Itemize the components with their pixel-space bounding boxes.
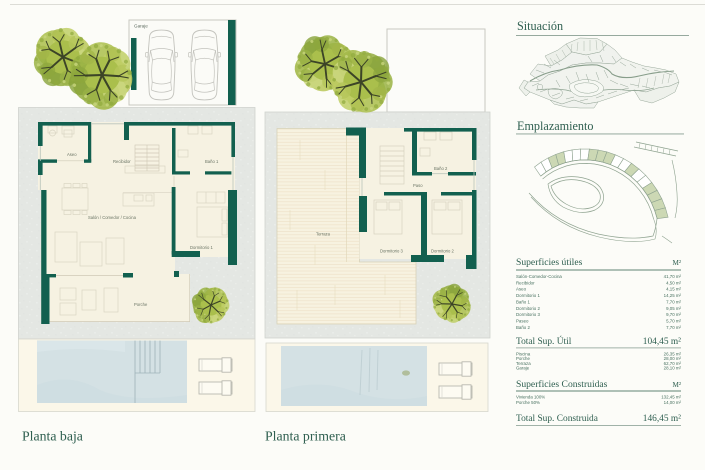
svg-text:Porche 50%: Porche 50% bbox=[516, 400, 540, 405]
svg-text:14,00 m²: 14,00 m² bbox=[664, 400, 682, 405]
svg-text:Baño 2: Baño 2 bbox=[434, 166, 448, 171]
svg-text:Planta baja: Planta baja bbox=[22, 429, 83, 444]
svg-text:Baño 2: Baño 2 bbox=[516, 325, 530, 330]
svg-text:28,10 m²: 28,10 m² bbox=[664, 366, 682, 371]
svg-text:Superficies Construidas: Superficies Construidas bbox=[516, 379, 608, 390]
svg-text:7,70 m²: 7,70 m² bbox=[666, 299, 681, 304]
svg-text:Situación: Situación bbox=[517, 19, 563, 33]
svg-text:Baño 1: Baño 1 bbox=[205, 159, 219, 164]
svg-text:M²: M² bbox=[672, 259, 681, 267]
svg-text:104,45 m²: 104,45 m² bbox=[643, 337, 681, 347]
svg-text:Baño 1: Baño 1 bbox=[516, 299, 530, 304]
svg-text:5,70 m²: 5,70 m² bbox=[666, 319, 681, 324]
svg-text:Superficies útiles: Superficies útiles bbox=[516, 257, 583, 268]
svg-text:Dormitorio 1: Dormitorio 1 bbox=[190, 245, 213, 250]
svg-text:Planta primera: Planta primera bbox=[265, 429, 346, 444]
svg-text:Paseo: Paseo bbox=[516, 319, 529, 324]
svg-text:Salón-Comedor-Cocina: Salón-Comedor-Cocina bbox=[516, 274, 562, 279]
svg-text:Dormitorio 1: Dormitorio 1 bbox=[516, 293, 540, 298]
svg-text:Aseo: Aseo bbox=[516, 287, 527, 292]
svg-text:14,25 m²: 14,25 m² bbox=[664, 293, 682, 298]
svg-text:Dormitorio 3: Dormitorio 3 bbox=[516, 312, 540, 317]
svg-text:M²: M² bbox=[672, 381, 681, 389]
svg-text:Recibidor: Recibidor bbox=[113, 159, 131, 164]
svg-text:146,45 m²: 146,45 m² bbox=[643, 414, 681, 424]
svg-text:9,70 m²: 9,70 m² bbox=[666, 312, 681, 317]
svg-text:Total Sup. Construida: Total Sup. Construida bbox=[516, 414, 599, 424]
svg-text:Salón / Comedor / Cocina: Salón / Comedor / Cocina bbox=[88, 215, 137, 220]
svg-text:Paso: Paso bbox=[413, 183, 423, 188]
svg-text:7,70 m²: 7,70 m² bbox=[666, 325, 681, 330]
svg-text:Total Sup. Útil: Total Sup. Útil bbox=[516, 335, 572, 347]
svg-text:Dormitorio 3: Dormitorio 3 bbox=[380, 249, 403, 254]
svg-text:9,05 m²: 9,05 m² bbox=[666, 306, 681, 311]
svg-text:Garaje: Garaje bbox=[516, 366, 530, 371]
svg-text:Dormitorio 2: Dormitorio 2 bbox=[516, 306, 540, 311]
svg-text:Recibidor: Recibidor bbox=[516, 280, 535, 285]
svg-text:Terraza: Terraza bbox=[316, 232, 331, 237]
svg-text:Dormitorio 2: Dormitorio 2 bbox=[431, 249, 454, 254]
svg-text:41,70 m²: 41,70 m² bbox=[664, 274, 682, 279]
svg-text:Aseo: Aseo bbox=[67, 152, 77, 157]
svg-text:Garaje: Garaje bbox=[134, 24, 148, 29]
svg-text:4,15 m²: 4,15 m² bbox=[666, 287, 681, 292]
svg-text:Porche: Porche bbox=[134, 302, 148, 307]
svg-text:132,45 m²: 132,45 m² bbox=[661, 395, 681, 400]
svg-text:Vivienda 100%: Vivienda 100% bbox=[516, 395, 545, 400]
svg-text:4,50 m²: 4,50 m² bbox=[666, 280, 681, 285]
svg-text:Emplazamiento: Emplazamiento bbox=[517, 119, 593, 133]
